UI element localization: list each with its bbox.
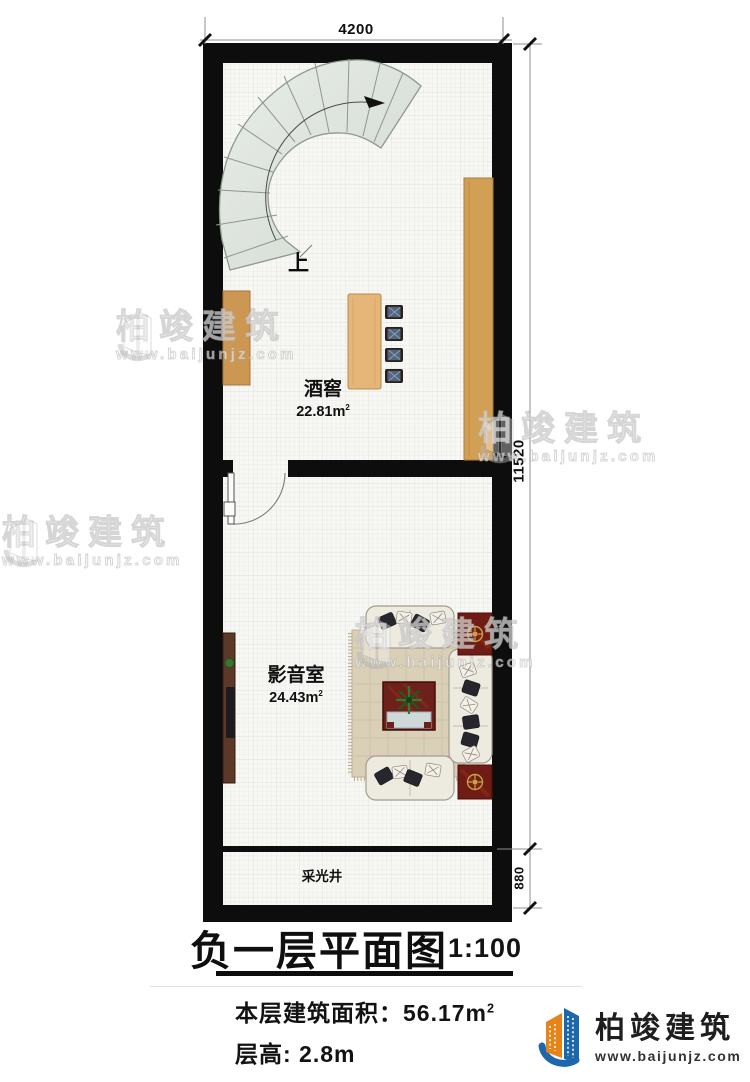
wine-cellar-name: 酒窖 bbox=[296, 379, 350, 401]
sofa-bottom bbox=[366, 756, 454, 800]
plant bbox=[225, 659, 234, 668]
media-room-name: 影音室 bbox=[267, 665, 324, 687]
side-cabinet bbox=[223, 291, 250, 385]
floor-area-text: 本层建筑面积：56.17m2 bbox=[235, 994, 495, 1028]
company-name: 柏竣建筑 bbox=[595, 1014, 735, 1044]
dimension-light-well-depth: 880 bbox=[512, 866, 527, 889]
chair bbox=[385, 348, 403, 362]
logo-icon-spacer bbox=[536, 1008, 586, 1068]
room-label-light-well: 采光井 bbox=[302, 865, 343, 885]
room-label-wine-cellar: 酒窖 22.81m2 bbox=[296, 379, 350, 420]
chair bbox=[385, 305, 403, 319]
drawing-scale: 1:100 bbox=[448, 933, 522, 964]
floor-plan-sheet: 4200 11520 880 上 酒窖 22.81m2 影音室 24.43m2 … bbox=[0, 0, 750, 1082]
red-mat-bottom bbox=[458, 765, 492, 799]
room-label-media-room: 影音室 24.43m2 bbox=[267, 665, 324, 706]
door-handle bbox=[224, 502, 235, 516]
light-well-floor bbox=[223, 852, 492, 905]
dimension-right-height: 11520 bbox=[511, 439, 528, 482]
company-website: www.baijunjz.com bbox=[595, 1049, 741, 1063]
chair bbox=[385, 369, 403, 383]
company-logo: 柏竣建筑 www.baijunjz.com bbox=[536, 1006, 746, 1070]
wine-rack-cabinet bbox=[464, 178, 493, 460]
sofa-right bbox=[449, 649, 492, 763]
wine-cellar-area: 22.81m2 bbox=[296, 403, 350, 421]
door-opening bbox=[233, 460, 288, 477]
chair bbox=[385, 327, 403, 341]
separator-line bbox=[150, 986, 582, 987]
floor-height-text: 层高: 2.8m bbox=[235, 1035, 355, 1069]
red-mat-top bbox=[458, 613, 492, 655]
tv-screen bbox=[226, 687, 235, 738]
sofa-top bbox=[366, 606, 454, 648]
title-underline bbox=[216, 971, 513, 976]
page-title: 负一层平面图 bbox=[190, 917, 448, 977]
media-room-area: 24.43m2 bbox=[267, 689, 324, 707]
stair-direction-label: 上 bbox=[288, 247, 309, 277]
coffee-table bbox=[383, 682, 435, 730]
dimension-top-width: 4200 bbox=[338, 21, 373, 38]
